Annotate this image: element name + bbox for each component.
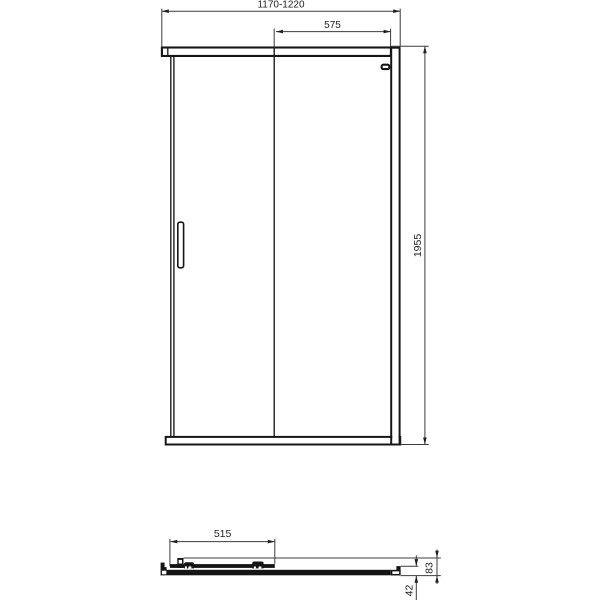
- svg-text:575: 575: [324, 20, 341, 31]
- svg-text:1955: 1955: [412, 234, 424, 258]
- svg-text:42: 42: [403, 585, 415, 597]
- svg-text:1170-1220: 1170-1220: [257, 0, 305, 11]
- svg-text:83: 83: [424, 562, 436, 574]
- svg-text:515: 515: [214, 528, 232, 540]
